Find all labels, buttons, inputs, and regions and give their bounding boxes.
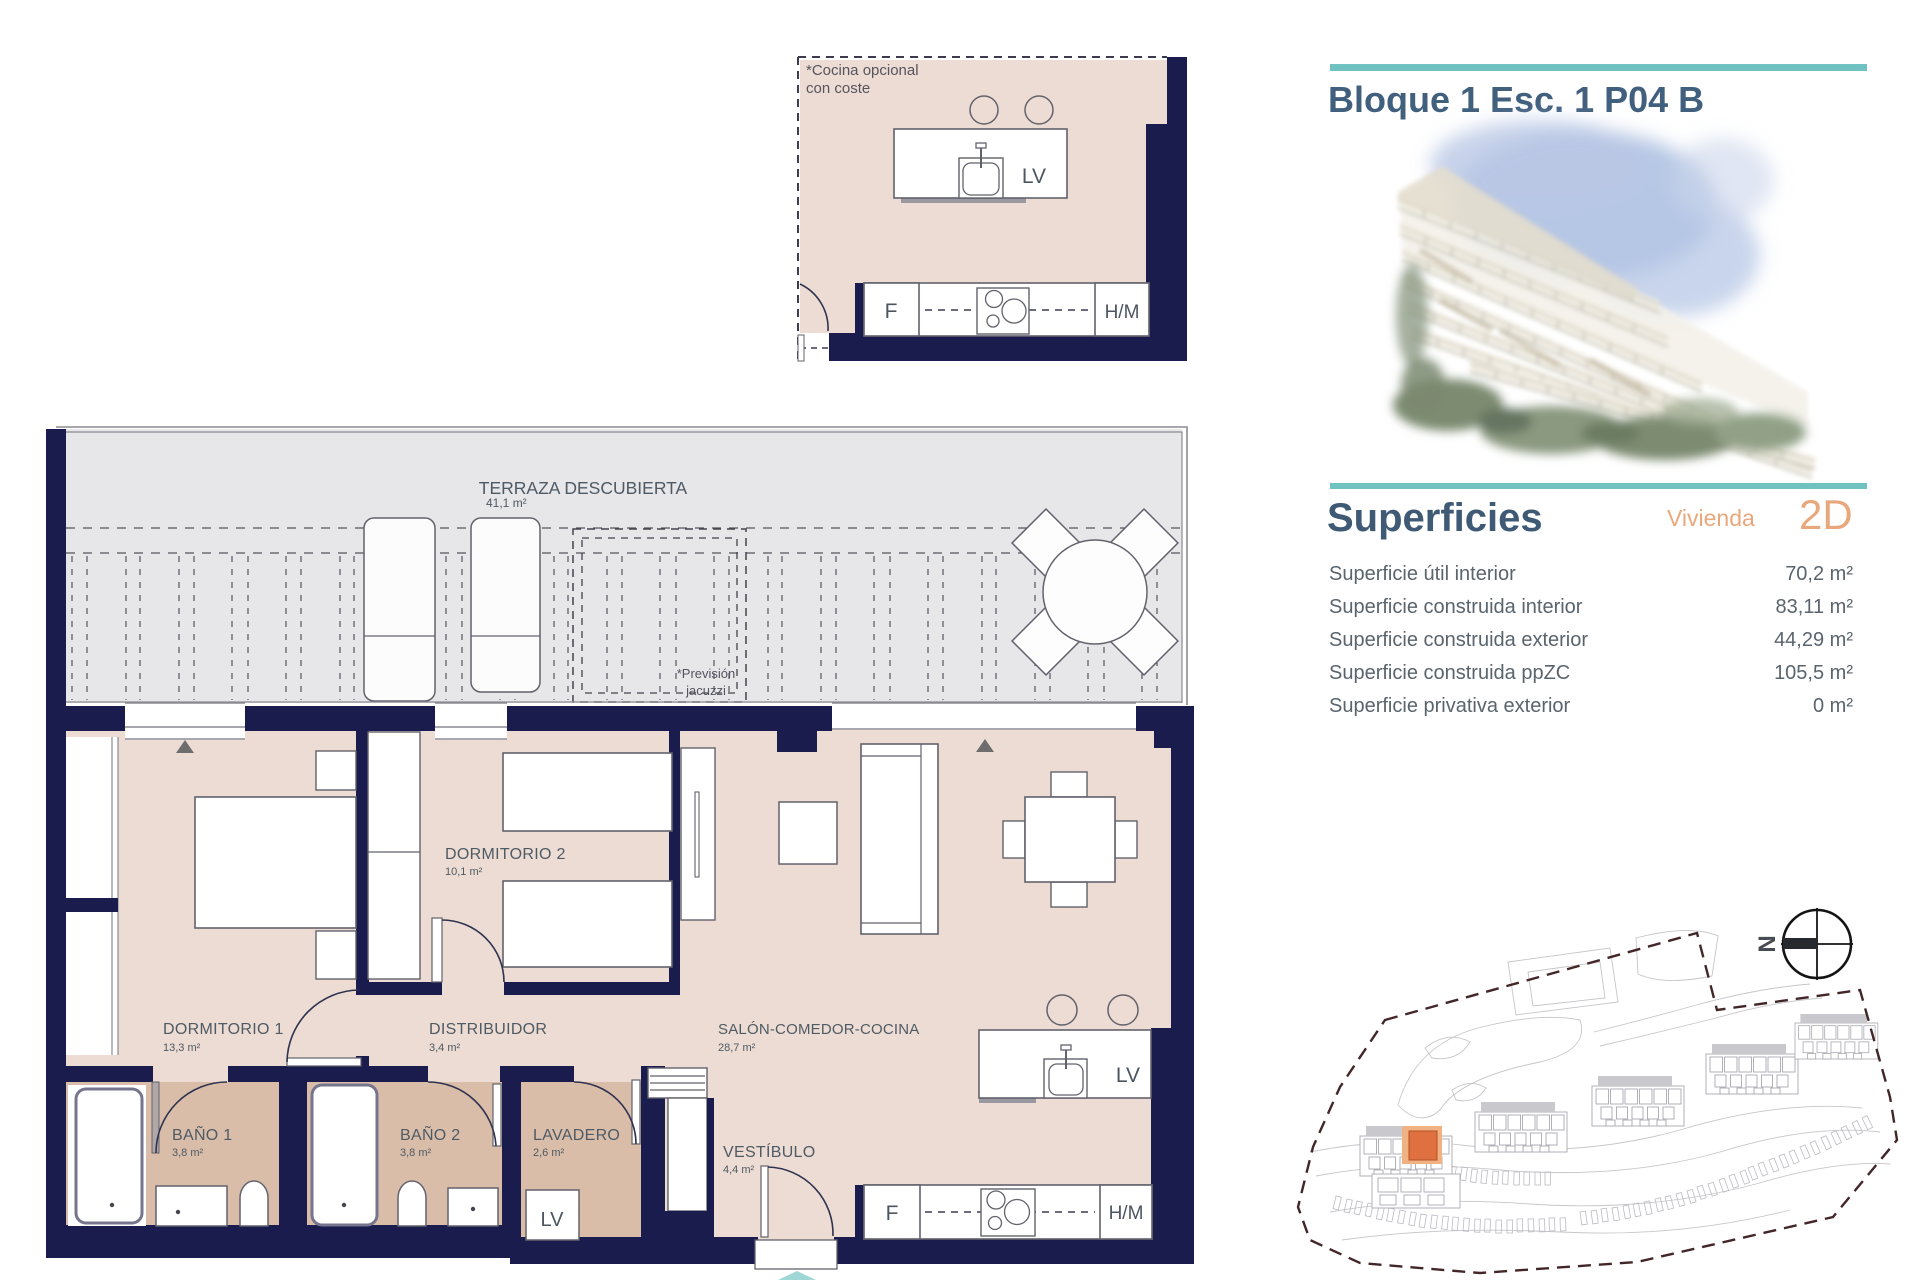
svg-text:*Cocina opcional: *Cocina opcional	[806, 62, 919, 79]
svg-text:LV: LV	[1116, 1064, 1140, 1087]
svg-text:SALÓN-COMEDOR-COCINA: SALÓN-COMEDOR-COCINA	[718, 1021, 920, 1038]
svg-text:41,1 m²: 41,1 m²	[486, 496, 527, 510]
svg-text:13,3 m²: 13,3 m²	[163, 1042, 201, 1054]
svg-text:F: F	[886, 1202, 899, 1225]
svg-text:Superficie construida interior: Superficie construida interior	[1329, 596, 1583, 618]
svg-text:2,6 m²: 2,6 m²	[533, 1147, 565, 1159]
svg-text:83,11 m²: 83,11 m²	[1776, 596, 1854, 618]
svg-text:3,8 m²: 3,8 m²	[400, 1147, 432, 1159]
svg-text:Superficie construida ppZC: Superficie construida ppZC	[1329, 662, 1570, 684]
svg-text:Superficies: Superficies	[1327, 496, 1543, 540]
svg-text:LV: LV	[1022, 165, 1046, 188]
svg-text:10,1 m²: 10,1 m²	[445, 866, 483, 878]
svg-text:DISTRIBUIDOR: DISTRIBUIDOR	[429, 1021, 547, 1038]
svg-text:0 m²: 0 m²	[1813, 695, 1853, 717]
svg-text:Bloque 1 Esc. 1 P04 B: Bloque 1 Esc. 1 P04 B	[1328, 79, 1704, 120]
svg-text:Superficie privativa exterior: Superficie privativa exterior	[1329, 695, 1571, 717]
svg-text:VESTÍBULO: VESTÍBULO	[723, 1142, 816, 1161]
svg-text:44,29 m²: 44,29 m²	[1774, 629, 1853, 651]
svg-text:105,5 m²: 105,5 m²	[1774, 662, 1853, 684]
svg-text:28,7 m²: 28,7 m²	[718, 1042, 756, 1054]
svg-text:F: F	[885, 300, 898, 323]
svg-text:4,4 m²: 4,4 m²	[723, 1164, 755, 1176]
svg-text:H/M: H/M	[1105, 302, 1140, 323]
svg-text:TERRAZA DESCUBIERTA: TERRAZA DESCUBIERTA	[479, 478, 688, 498]
svg-text:LAVADERO: LAVADERO	[533, 1127, 620, 1144]
svg-text:con coste: con coste	[806, 80, 870, 97]
svg-text:LV: LV	[541, 1209, 565, 1231]
svg-text:N: N	[1754, 935, 1781, 952]
svg-text:jacuzzi: jacuzzi	[685, 683, 726, 698]
svg-text:3,8 m²: 3,8 m²	[172, 1147, 204, 1159]
svg-text:Superficie construida exterior: Superficie construida exterior	[1329, 629, 1588, 651]
svg-text:Superficie útil interior: Superficie útil interior	[1329, 563, 1516, 585]
svg-text:BAÑO 2: BAÑO 2	[400, 1124, 461, 1144]
svg-text:H/M: H/M	[1109, 1203, 1144, 1224]
svg-text:Vivienda: Vivienda	[1667, 505, 1755, 531]
svg-text:*Previsión: *Previsión	[677, 666, 736, 681]
svg-text:BAÑO 1: BAÑO 1	[172, 1124, 233, 1144]
svg-text:DORMITORIO 1: DORMITORIO 1	[163, 1021, 284, 1038]
svg-text:70,2 m²: 70,2 m²	[1785, 563, 1853, 585]
svg-text:3,4 m²: 3,4 m²	[429, 1042, 461, 1054]
svg-text:2D: 2D	[1799, 491, 1853, 538]
svg-text:DORMITORIO 2: DORMITORIO 2	[445, 846, 566, 863]
